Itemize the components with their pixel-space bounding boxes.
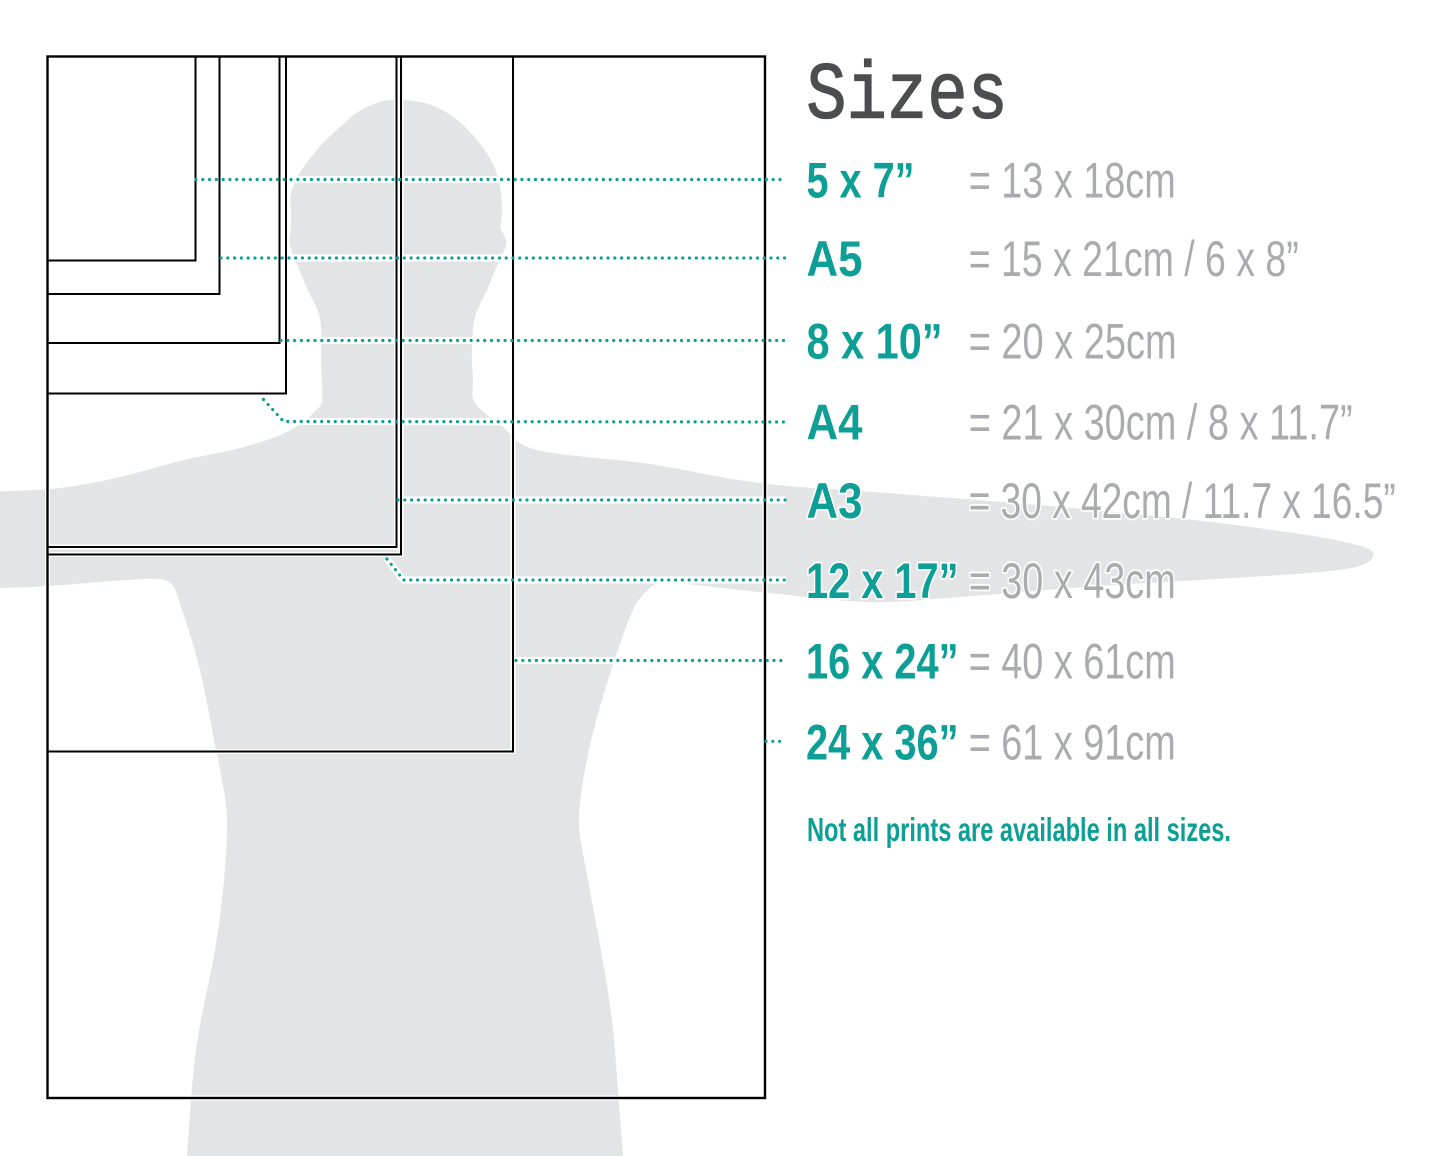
svg-text:= 61 x 91cm: = 61 x 91cm [969,714,1176,770]
svg-text:= 30 x 43cm: = 30 x 43cm [969,553,1176,609]
svg-text:= 20 x 25cm: = 20 x 25cm [969,314,1177,370]
svg-text:= 13 x 18cm: = 13 x 18cm [969,153,1176,209]
svg-text:Not all prints are available i: Not all prints are available in all size… [807,811,1231,848]
svg-text:A3: A3 [807,473,863,529]
svg-text:12 x 17”: 12 x 17” [806,553,959,609]
svg-text:8 x 10”: 8 x 10” [807,314,943,370]
svg-text:= 40 x 61cm: = 40 x 61cm [969,634,1176,690]
svg-text:Sizes: Sizes [806,51,1008,142]
svg-text:24 x 36”: 24 x 36” [806,714,959,770]
svg-text:A4: A4 [807,395,863,451]
svg-text:A5: A5 [807,231,863,287]
svg-text:5 x 7”: 5 x 7” [807,153,915,209]
svg-text:16 x 24”: 16 x 24” [806,634,959,690]
svg-text:= 30 x 42cm / 11.7 x 16.5”: = 30 x 42cm / 11.7 x 16.5” [969,473,1396,529]
svg-text:= 15 x 21cm / 6 x 8”: = 15 x 21cm / 6 x 8” [969,231,1299,287]
svg-text:= 21 x 30cm / 8 x 11.7”: = 21 x 30cm / 8 x 11.7” [969,395,1353,451]
